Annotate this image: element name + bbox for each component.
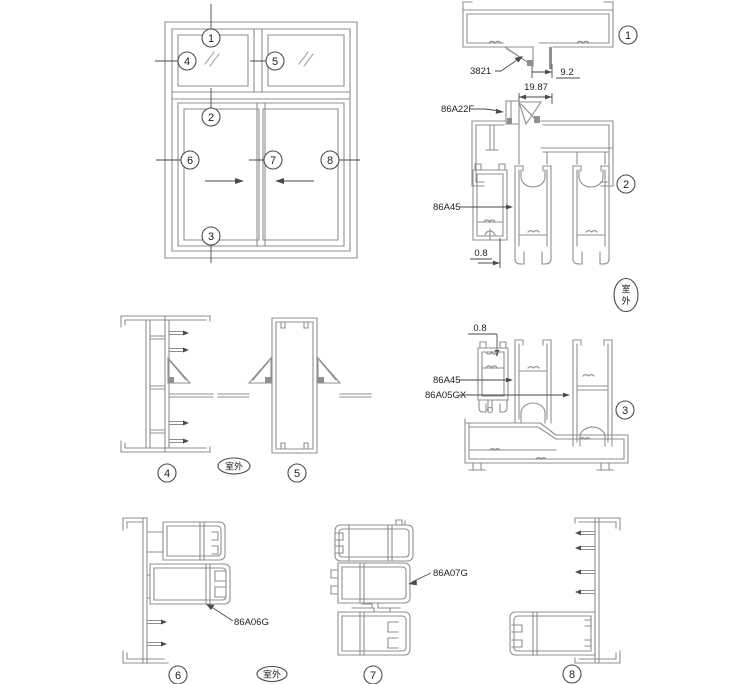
slide-arrow-right-head <box>275 178 284 184</box>
mullion-profile-s5 <box>272 318 317 453</box>
section-4-number: 4 <box>164 468 170 480</box>
glide-track-left <box>515 166 551 264</box>
outdoor-marker-middle: 室外 <box>218 458 250 474</box>
section-2-number: 2 <box>623 179 629 191</box>
jamb-fin-tips-s6 <box>161 620 167 647</box>
dim-0-8-s3: 0.8 <box>473 323 486 334</box>
jamb-fins-s4 <box>169 332 183 443</box>
window-section-drawing: 1 2 3 4 5 6 7 8 9.2 3821 1 19.87 <box>0 0 756 684</box>
sill-profile <box>465 419 628 470</box>
callout-6-number: 6 <box>187 155 193 167</box>
callout-3-number: 3 <box>208 231 214 243</box>
label-86a22f: 86A22F <box>441 104 474 115</box>
section-6-jamb-left: 86A06G 6 <box>123 518 269 684</box>
glass-lines-s5 <box>218 394 371 397</box>
section-1-number: 1 <box>625 30 631 42</box>
glide-track-right <box>573 166 609 264</box>
outdoor-right-char-2: 外 <box>621 295 630 306</box>
label-86a06g-arrowhead <box>206 604 215 610</box>
label-86a45-s2-arrowhead <box>506 205 513 210</box>
elevation-frame-inner <box>172 29 350 251</box>
glazing-bead-foot-s4 <box>168 377 174 383</box>
outdoor-middle-label: 室外 <box>225 461 243 472</box>
glazing-bead-left-foot-s5 <box>265 377 271 383</box>
section-3-sill: 0.8 86A45 86A05GX 3 <box>425 323 634 470</box>
stile-lower-box-s7 <box>338 612 410 655</box>
glazing-bead-foot <box>527 60 533 66</box>
label-86a45-s2: 86A45 <box>433 202 460 213</box>
jamb-fin-tips-s8 <box>575 531 581 595</box>
stile-interlock-s7 <box>352 603 400 612</box>
section-5-number: 5 <box>294 468 300 480</box>
label-86a06g-leader <box>210 606 233 621</box>
label-86a45-s3-arrowhead <box>506 378 513 383</box>
dim-9-2-arrow <box>545 70 552 75</box>
elevation-top-mullion <box>254 29 262 92</box>
elevation-sash-right <box>257 103 344 246</box>
section-5-mullion: 5 <box>218 318 371 482</box>
drawing-sheet: 1 2 3 4 5 6 7 8 9.2 3821 1 19.87 <box>0 0 756 684</box>
section-4-jamb: 4 <box>121 316 213 482</box>
elevation-transom <box>172 92 350 99</box>
callout-4-number: 4 <box>184 56 190 68</box>
section-2-transom: 86A22F 86A45 0.8 2 <box>433 101 635 268</box>
dim-9-2: 9.2 <box>560 67 573 78</box>
callout-5-number: 5 <box>272 56 278 68</box>
label-86a22f-arrowhead <box>496 109 504 114</box>
sash-box-s8 <box>510 612 595 655</box>
outdoor-right-char-1: 室 <box>621 283 630 294</box>
stile-upper-box-s7 <box>335 520 413 561</box>
dim-19-87: 19.87 <box>524 82 548 93</box>
jamb-fins-s6 <box>147 621 161 646</box>
dim-0-8-s2-arrow <box>493 261 500 266</box>
label-86a07g: 86A07G <box>433 568 468 579</box>
label-86a05gx-arrowhead <box>563 393 570 398</box>
section-7-meeting-stiles: 86A07G 7 <box>331 520 468 684</box>
sash-bottom-left-track <box>515 340 551 423</box>
outdoor-marker-right: 室 外 <box>614 279 638 312</box>
glass-line-s4 <box>170 394 213 397</box>
screen-track-86a45-s3 <box>478 342 508 412</box>
section-3-number: 3 <box>622 405 628 417</box>
sash-lower-box-86a06g <box>150 564 230 604</box>
stile-middle-box-86a07g <box>331 563 410 603</box>
glazing-bead-right-foot-s5 <box>318 377 324 383</box>
sash-upper-box-s6 <box>163 522 225 560</box>
elevation-sash-left <box>178 103 265 246</box>
label-86a45-s3: 86A45 <box>433 375 460 386</box>
callout-2-number: 2 <box>208 112 214 124</box>
callout-1-number: 1 <box>208 33 214 45</box>
outdoor-marker-bottom: 室外 <box>257 667 287 682</box>
transom-profile <box>472 121 613 186</box>
window-elevation: 1 2 3 4 5 6 7 8 <box>155 4 360 263</box>
screen-track-86a45 <box>473 164 507 240</box>
label-86a06g: 86A06G <box>234 617 269 628</box>
label-86a07g-arrowhead <box>408 580 417 585</box>
callout-8-number: 8 <box>327 155 333 167</box>
section-6-number: 6 <box>175 670 181 682</box>
glass-hatch-marks <box>205 52 313 66</box>
callout-7-number: 7 <box>270 155 276 167</box>
slide-arrow-left-head <box>235 178 244 184</box>
section-8-number: 8 <box>569 669 575 681</box>
jamb-profile-s6 <box>123 518 168 663</box>
label-86a05gx: 86A05GX <box>425 390 467 401</box>
jamb-fins-s8 <box>581 532 595 594</box>
jamb-fin-tips-s4 <box>183 331 189 444</box>
section-1-head-frame: 9.2 3821 1 19.87 <box>463 2 637 104</box>
jamb-profile-s4 <box>121 316 210 452</box>
section-7-number: 7 <box>370 670 376 682</box>
section-8-jamb-right: 8 <box>510 518 620 683</box>
label-3821: 3821 <box>470 66 491 77</box>
outdoor-bottom-label: 室外 <box>263 669 281 680</box>
label-86a22f-leader <box>471 109 500 111</box>
head-frame-profile <box>463 2 613 47</box>
dim-0-8-s2: 0.8 <box>474 248 487 259</box>
sash-bottom-right-track <box>573 340 612 446</box>
